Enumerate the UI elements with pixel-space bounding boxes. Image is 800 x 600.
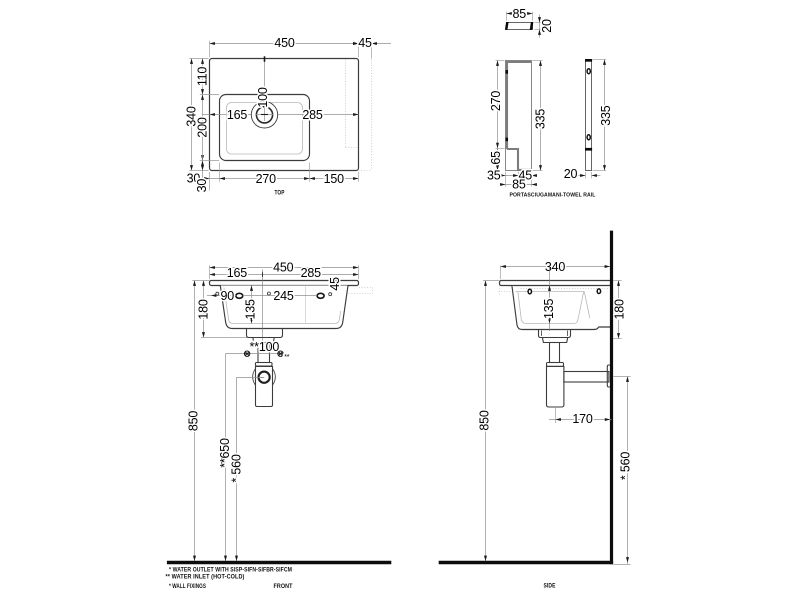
svg-text:335: 335 [599,105,613,126]
svg-text:100: 100 [256,87,270,108]
svg-text:200: 200 [195,117,209,138]
svg-text:PORTASCIUGAMANI-TOWEL RAIL: PORTASCIUGAMANI-TOWEL RAIL [510,193,596,199]
svg-text:TOP: TOP [275,191,285,197]
svg-text:**: ** [284,354,290,361]
svg-text:135: 135 [243,299,257,320]
svg-text:85: 85 [513,7,527,21]
svg-text:270: 270 [489,91,503,112]
svg-text:450: 450 [274,36,295,50]
svg-text:245: 245 [273,289,294,303]
svg-text:20: 20 [564,167,578,181]
svg-text:450: 450 [273,260,294,274]
svg-text:85: 85 [512,177,526,191]
svg-text:65: 65 [489,151,503,165]
svg-text:* WATER OUTLET WITH SISP-SIFN: * WATER OUTLET WITH SISP-SIFN-SIFBR-SIFC… [169,568,292,574]
svg-text:335: 335 [533,109,547,130]
svg-text:* 560: * 560 [229,454,243,482]
svg-text:FRONT: FRONT [274,584,293,590]
svg-text:* WALL FIXINGS: * WALL FIXINGS [169,584,206,590]
svg-text:180: 180 [196,299,210,320]
svg-text:165: 165 [227,266,248,280]
svg-text:90: 90 [221,289,235,303]
svg-text:340: 340 [545,260,566,274]
svg-text:45: 45 [328,277,342,291]
svg-text:SIDE: SIDE [544,583,556,589]
svg-text:170: 170 [572,412,593,426]
svg-text:850: 850 [187,411,201,432]
svg-text:110: 110 [195,67,209,87]
svg-text:**100: **100 [250,340,280,354]
svg-text:45: 45 [358,36,372,50]
svg-text:30: 30 [195,179,209,193]
svg-text:135: 135 [542,299,556,320]
svg-text:150: 150 [324,172,345,186]
svg-text:* 560: * 560 [619,452,633,480]
svg-text:285: 285 [302,108,323,122]
svg-text:165: 165 [227,108,248,122]
svg-text:35: 35 [487,168,501,182]
svg-text:20: 20 [540,19,554,33]
svg-text:285: 285 [301,266,322,280]
svg-text:850: 850 [478,410,492,431]
svg-text:180: 180 [612,299,626,320]
svg-text:270: 270 [256,172,277,186]
svg-text:** WATER INLET (HOT-COLD): ** WATER INLET (HOT-COLD) [166,575,245,581]
